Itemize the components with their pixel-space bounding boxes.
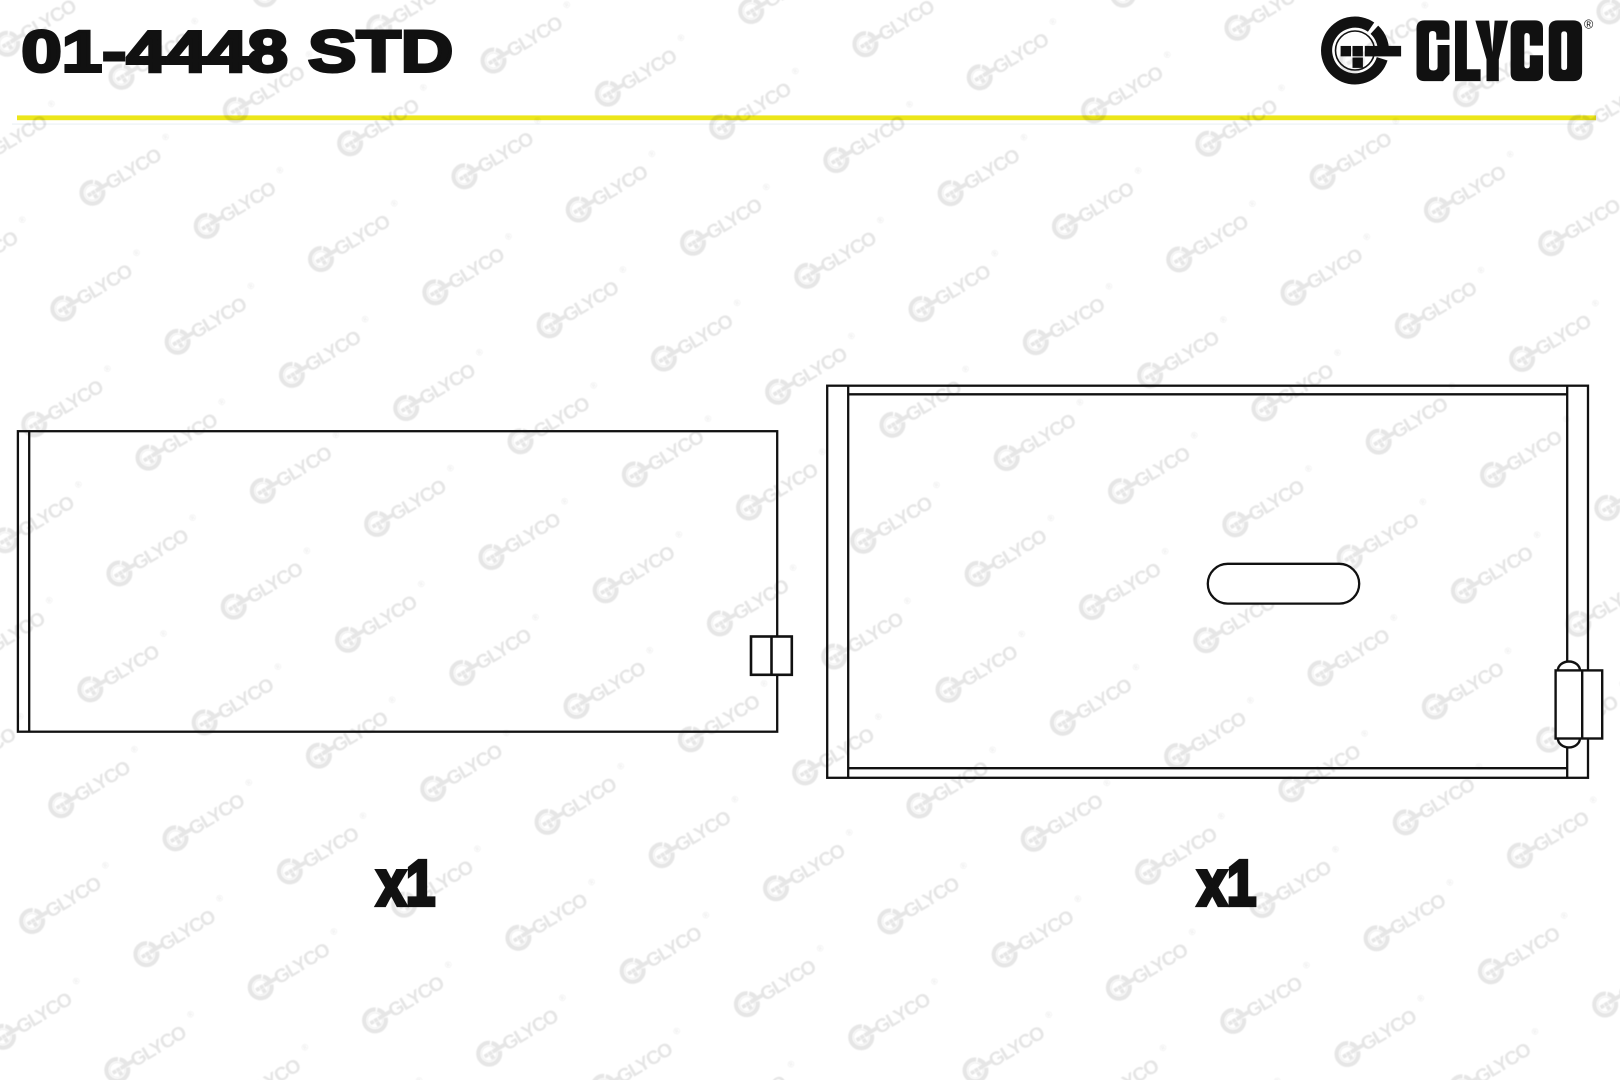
svg-text:01-4448 STD: 01-4448 STD <box>21 19 453 83</box>
svg-text:x1: x1 <box>1198 848 1256 919</box>
svg-text:®: ® <box>1584 18 1594 32</box>
svg-text:x1: x1 <box>377 848 435 919</box>
